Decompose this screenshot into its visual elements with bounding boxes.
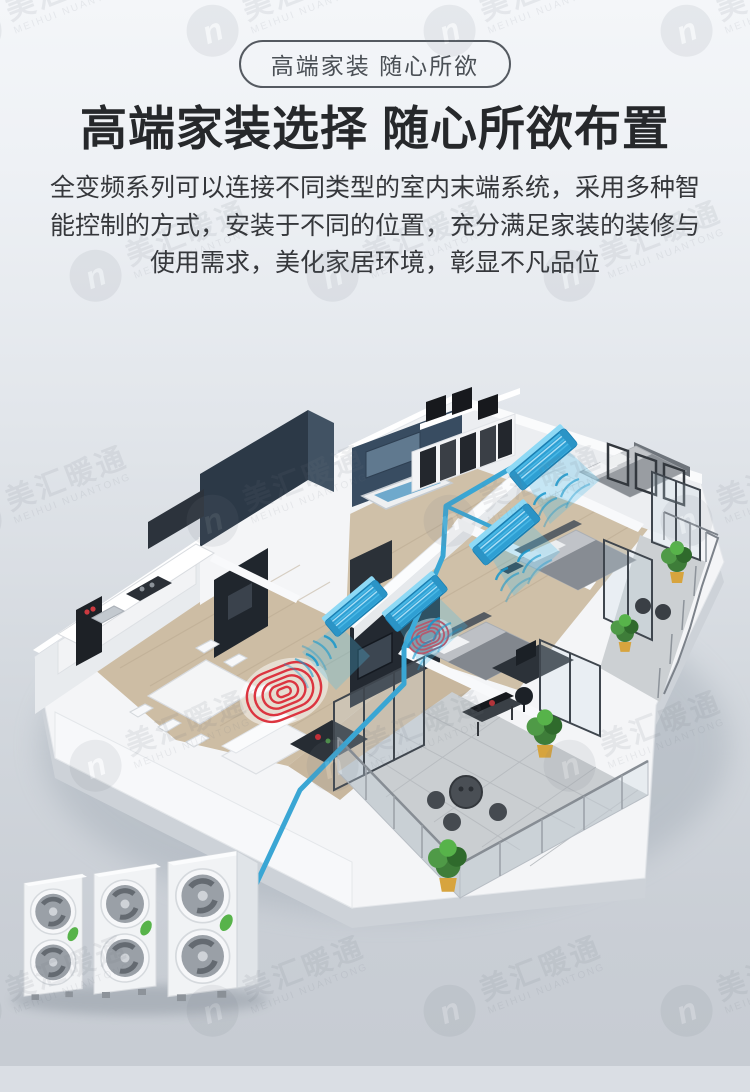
patio-chair <box>489 803 507 821</box>
wicker-chair <box>635 598 651 614</box>
tagline-badge: 高端家装 随心所欲 <box>239 40 511 88</box>
outdoor-unit <box>24 874 87 1000</box>
tagline-badge-label: 高端家装 随心所欲 <box>271 53 479 79</box>
patio-chair <box>427 791 445 809</box>
header: 高端家装 随心所欲 高端家装选择 随心所欲布置 全变频系列可以连接不同类型的室内… <box>0 0 750 283</box>
patio-chair <box>443 813 461 831</box>
outdoor-unit <box>168 851 243 1001</box>
page-title: 高端家装选择 随心所欲布置 <box>0 102 750 156</box>
outdoor-unit <box>94 864 161 998</box>
outdoor-units <box>24 851 258 1001</box>
promo-page: 高端家装 随心所欲 高端家装选择 随心所欲布置 全变频系列可以连接不同类型的室内… <box>0 0 750 1092</box>
patio-table <box>450 776 482 808</box>
wicker-chair <box>655 604 671 620</box>
intro-paragraph: 全变频系列可以连接不同类型的室内末端系统，采用多种智能控制的方式，安装于不同的位… <box>46 170 704 283</box>
